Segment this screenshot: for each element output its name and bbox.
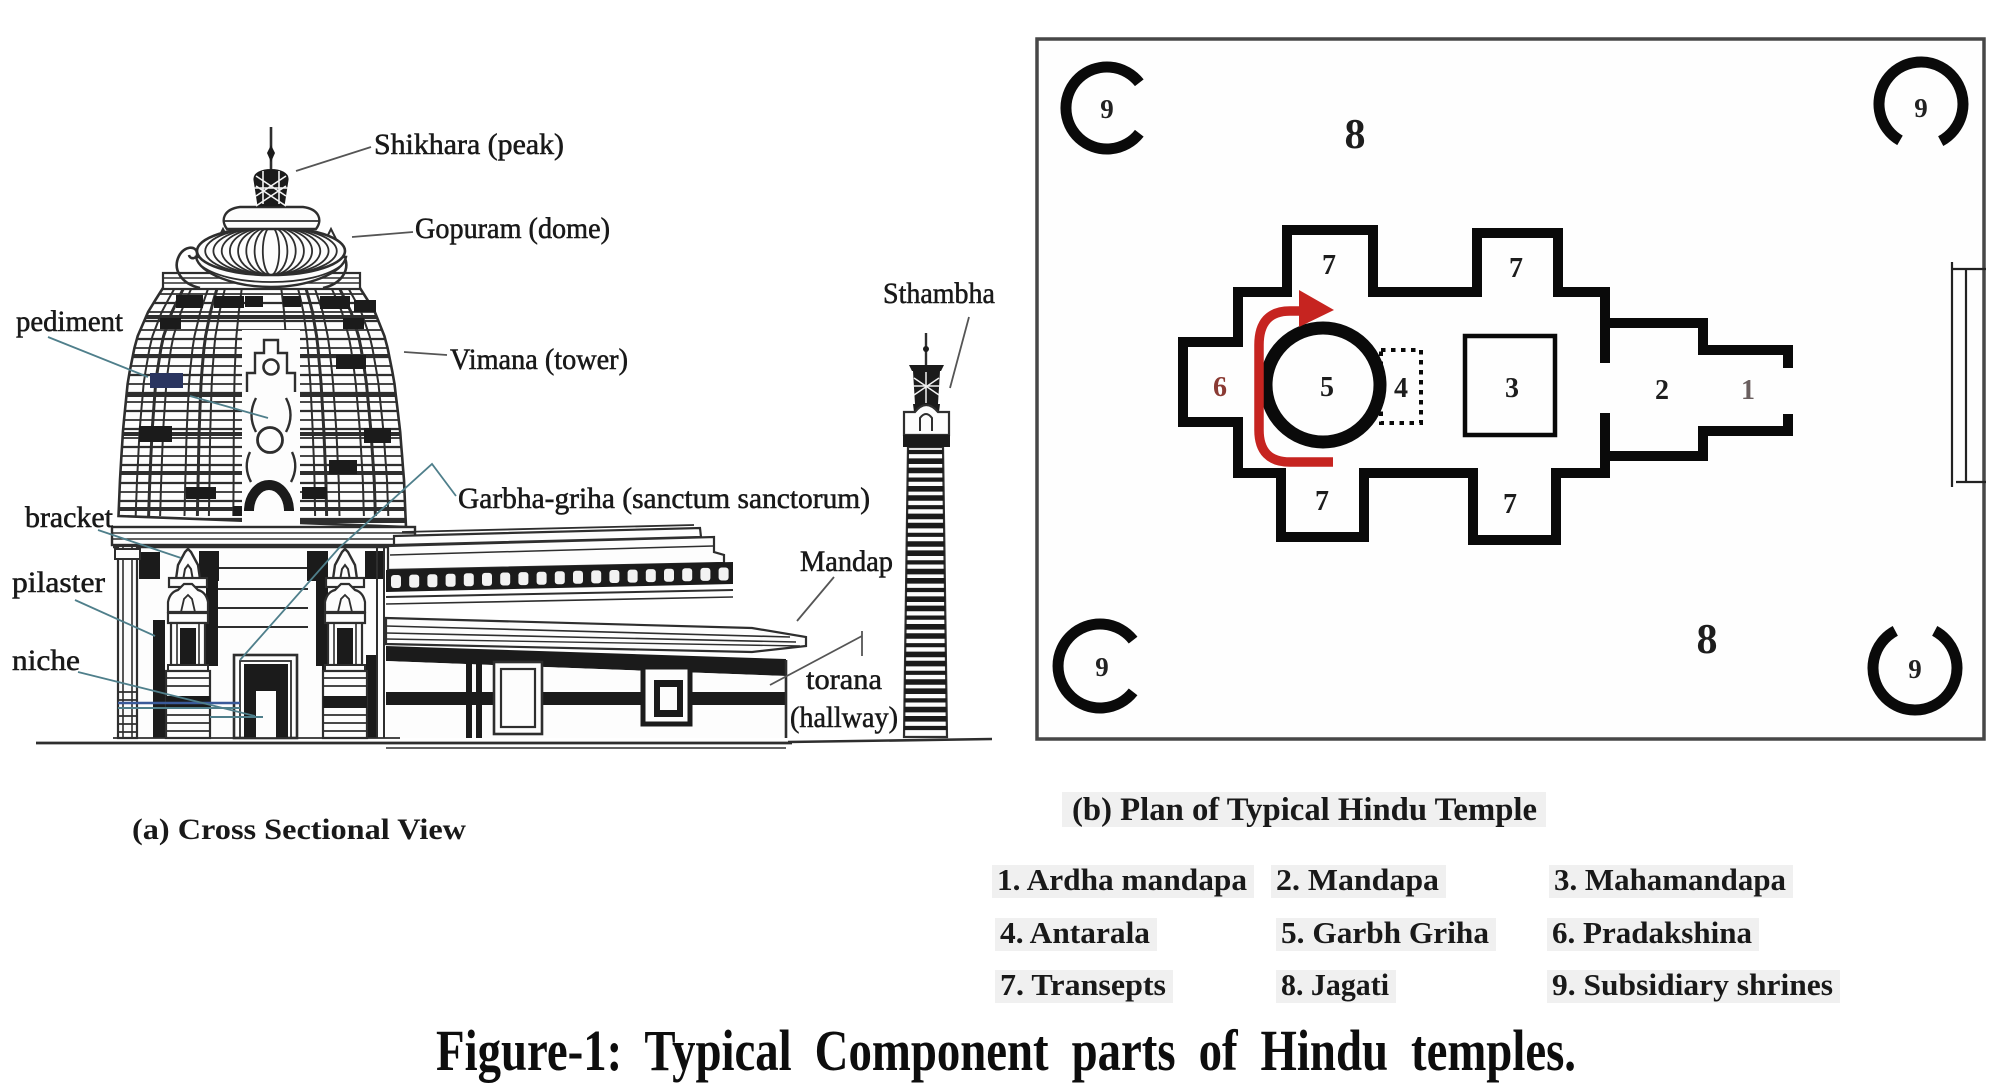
svg-text:3: 3 — [1505, 373, 1519, 404]
svg-text:6. Pradakshina: 6. Pradakshina — [1552, 915, 1752, 950]
svg-text:niche: niche — [12, 644, 80, 677]
svg-text:Figure-1: Typical Component pa: Figure-1: Typical Component parts of Hin… — [436, 1018, 1576, 1083]
svg-text:(b) Plan of Typical Hindu Temp: (b) Plan of Typical Hindu Temple — [1072, 792, 1537, 828]
svg-text:5. Garbh Griha: 5. Garbh Griha — [1281, 915, 1489, 950]
svg-text:torana: torana — [806, 663, 882, 696]
svg-text:pilaster: pilaster — [12, 566, 105, 599]
svg-text:9: 9 — [1100, 94, 1114, 124]
svg-text:2. Mandapa: 2. Mandapa — [1276, 862, 1440, 897]
svg-text:2: 2 — [1655, 375, 1669, 406]
svg-text:7. Transepts: 7. Transepts — [1000, 967, 1166, 1002]
svg-text:7: 7 — [1315, 486, 1329, 517]
svg-text:7: 7 — [1322, 250, 1336, 281]
svg-text:Shikhara (peak): Shikhara (peak) — [374, 128, 564, 161]
svg-text:7: 7 — [1503, 489, 1517, 520]
svg-text:Gopuram (dome): Gopuram (dome) — [415, 212, 610, 245]
svg-text:4: 4 — [1394, 373, 1408, 404]
svg-text:9. Subsidiary shrines: 9. Subsidiary shrines — [1552, 967, 1833, 1002]
svg-text:Sthambha: Sthambha — [883, 277, 995, 310]
svg-text:1. Ardha mandapa: 1. Ardha mandapa — [997, 862, 1247, 897]
svg-text:4. Antarala: 4. Antarala — [1000, 915, 1150, 950]
svg-text:9: 9 — [1914, 93, 1928, 123]
svg-text:3. Mahamandapa: 3. Mahamandapa — [1554, 862, 1786, 897]
svg-text:8: 8 — [1697, 617, 1718, 663]
svg-text:8: 8 — [1345, 112, 1366, 158]
svg-text:(a) Cross Sectional View: (a) Cross Sectional View — [132, 813, 466, 846]
svg-text:9: 9 — [1908, 654, 1922, 684]
svg-text:Mandap: Mandap — [800, 545, 893, 578]
svg-text:Vimana (tower): Vimana (tower) — [450, 343, 628, 376]
svg-text:Garbha-griha (sanctum sanctoru: Garbha-griha (sanctum sanctorum) — [458, 482, 870, 515]
svg-text:bracket: bracket — [25, 501, 114, 534]
svg-text:8. Jagati: 8. Jagati — [1281, 967, 1389, 1002]
svg-text:pediment: pediment — [16, 305, 124, 338]
svg-text:6: 6 — [1213, 372, 1227, 403]
svg-text:7: 7 — [1509, 253, 1523, 284]
svg-text:1: 1 — [1741, 375, 1755, 406]
svg-text:(hallway): (hallway) — [790, 701, 898, 734]
svg-text:5: 5 — [1320, 372, 1334, 403]
svg-text:9: 9 — [1095, 652, 1109, 682]
